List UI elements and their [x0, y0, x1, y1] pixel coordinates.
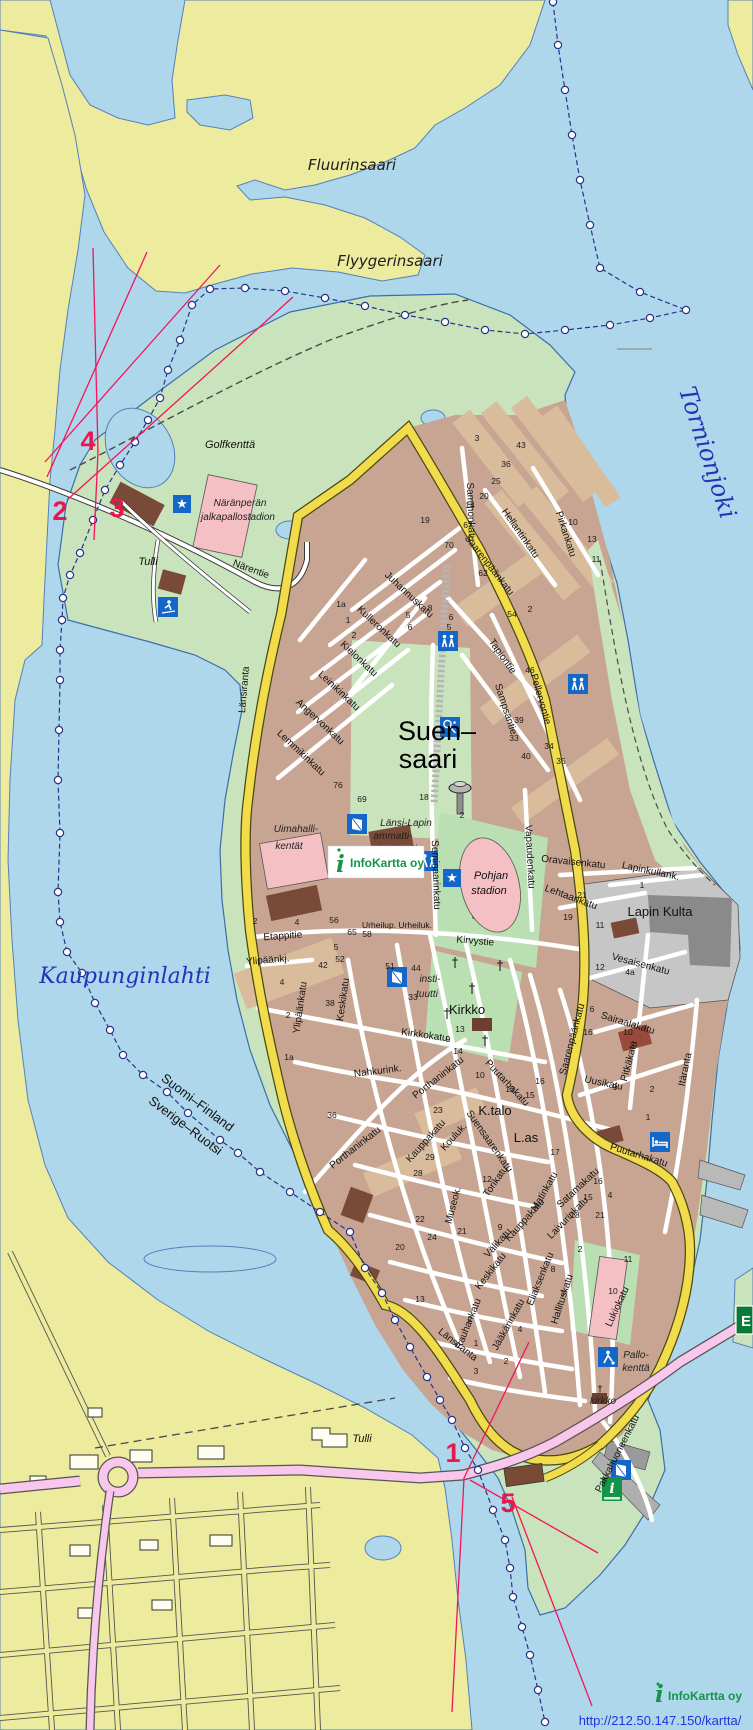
house-number: 11 — [624, 1254, 633, 1264]
skier-icon — [158, 597, 178, 617]
house-number: 10 — [623, 1027, 633, 1037]
star-icon: ★ — [443, 869, 461, 887]
house-number: 36 — [501, 459, 511, 469]
house-number: 4 — [608, 1190, 613, 1200]
house-number: 19 — [420, 515, 430, 525]
house-number: 2 — [253, 916, 258, 926]
map-marker-5[interactable]: 5 — [500, 1488, 515, 1518]
hotel-icon — [650, 1132, 670, 1152]
house-number: 58 — [362, 929, 372, 939]
map-marker-4[interactable]: 4 — [80, 426, 95, 456]
house-number: 1 — [640, 880, 645, 890]
house-number: 19 — [563, 912, 573, 922]
label-tulli-se: Tulli — [352, 1433, 372, 1445]
label-instituutti-1: Länsi-Lapin — [380, 818, 432, 829]
map-marker-2[interactable]: 2 — [52, 496, 67, 526]
house-number: 11 — [592, 554, 601, 564]
house-number: 35 — [556, 756, 566, 766]
house-number: 10 — [475, 1070, 485, 1080]
house-number: 69 — [357, 794, 367, 804]
house-number: 51 — [385, 961, 395, 971]
svg-text:†: † — [497, 959, 504, 974]
house-number: 18 — [419, 792, 429, 802]
label-pallokentta-1: Pallo- — [623, 1350, 649, 1361]
map-source-url[interactable]: http://212.50.147.150/kartta/ — [579, 1713, 742, 1728]
label-kirkko: Kirkko — [449, 1002, 485, 1017]
house-number: 12 — [595, 962, 605, 972]
svg-text:†: † — [598, 1384, 603, 1395]
label-naranperan-1: Näränperän — [214, 498, 267, 509]
house-number: 10 — [608, 1286, 618, 1296]
label-golfkentta: Golfkenttä — [205, 439, 255, 451]
house-number: 6 — [408, 622, 413, 632]
map-page: ★ ★ — [0, 0, 753, 1730]
house-number: 5 — [406, 610, 411, 620]
label-las: L.as — [514, 1130, 539, 1145]
tornio-city-map: ★ ★ — [0, 0, 753, 1730]
house-number: 20 — [479, 491, 489, 501]
house-number: 16 — [593, 1176, 603, 1186]
house-number: 2 — [578, 1244, 583, 1254]
label-lapinkulta: Lapin Kulta — [627, 904, 693, 919]
house-number: 36 — [327, 1110, 337, 1120]
logo-i-glyph: i — [336, 851, 345, 878]
star-icon: ★ — [173, 495, 191, 513]
svg-text:†: † — [452, 956, 459, 971]
label-kirkko-small: kirkko — [590, 1396, 617, 1407]
house-number: 4 — [280, 977, 285, 987]
e-road-sign: E — [736, 1306, 753, 1334]
house-number: 34 — [544, 741, 554, 751]
house-number: 3 — [475, 433, 480, 443]
house-number: 2 — [286, 1010, 291, 1020]
house-number: 9 — [446, 1034, 451, 1044]
house-number: 1a — [284, 1052, 294, 1062]
house-number: 1 — [474, 1338, 479, 1348]
house-number: 25 — [491, 476, 501, 486]
label-instituutti2-2: tuutti — [416, 989, 438, 1000]
island-label-fluurinsaari: Fluurinsaari — [308, 156, 397, 174]
house-number: 6 — [449, 612, 454, 622]
svg-text:†: † — [482, 1034, 489, 1049]
house-number: 1a — [336, 599, 346, 609]
map-marker-1[interactable]: 1 — [445, 1438, 460, 1468]
house-number: 13 — [415, 1294, 425, 1304]
house-number: 2 — [352, 630, 357, 640]
svg-text:★: ★ — [176, 496, 188, 511]
house-number: 5 — [334, 942, 339, 952]
house-number: 2 — [468, 1314, 473, 1324]
house-number: 2 — [504, 1356, 509, 1366]
house-number: 3 — [474, 1366, 479, 1376]
house-number: 44 — [411, 963, 421, 973]
museum-icon — [347, 814, 367, 834]
house-number: 18 — [570, 1210, 580, 1220]
house-number: 67 — [463, 520, 473, 530]
house-number: 12 — [505, 1084, 515, 1094]
house-number: 2 — [460, 810, 465, 820]
house-number: 11 — [596, 920, 605, 930]
house-number: 8 — [551, 1264, 556, 1274]
house-number: 12 — [482, 1174, 492, 1184]
house-number: 10 — [568, 517, 578, 527]
house-number: 28 — [413, 1168, 423, 1178]
house-number: 65 — [347, 927, 357, 937]
house-number: 4 — [518, 1324, 523, 1334]
house-number: 16 — [583, 1027, 593, 1037]
house-number: 40 — [521, 751, 531, 761]
island-label-flyygerinsaari: Flyygerinsaari — [337, 252, 444, 270]
house-number: 21 — [595, 1210, 605, 1220]
house-number: 2 — [528, 604, 533, 614]
infokartta-logo-center: i InfoKartta oy — [328, 846, 424, 878]
house-number: 20 — [395, 1242, 405, 1252]
house-number: 14 — [453, 1046, 463, 1056]
pond — [365, 1536, 401, 1560]
house-number: 33 — [509, 733, 519, 743]
house-number: 7 — [561, 1289, 566, 1299]
label-suensaari-2: saari — [399, 744, 458, 774]
football-icon — [598, 1347, 618, 1367]
label-suensaari-1: Suen– — [398, 716, 476, 746]
house-number: 54 — [507, 609, 517, 619]
house-number: 3 — [630, 1040, 635, 1050]
house-number: 4a — [625, 967, 635, 977]
house-number: 70 — [444, 540, 454, 550]
logo-text: InfoKartta oy — [668, 1689, 742, 1703]
e-road-sign-label: E — [741, 1313, 751, 1330]
house-number: 43 — [516, 440, 526, 450]
label-kentat-1: Uimahalli- — [274, 824, 319, 835]
house-number: 52 — [335, 954, 345, 964]
svg-text:i: i — [609, 1481, 614, 1497]
label-ktalo: K.talo — [478, 1103, 511, 1118]
house-number: 13 — [587, 534, 597, 544]
pedestrian-crossing-icon — [568, 674, 588, 694]
house-number: 5 — [447, 622, 452, 632]
house-number: 15 — [525, 1090, 535, 1100]
logo-text: InfoKartta oy — [350, 856, 424, 870]
house-number: 8 — [428, 603, 433, 613]
house-number: 23 — [433, 1105, 443, 1115]
house-number: 22 — [415, 1214, 425, 1224]
svg-text:†: † — [469, 982, 476, 997]
house-number: 38 — [325, 998, 335, 1008]
house-number: 29 — [425, 1152, 435, 1162]
house-number: 21 — [577, 890, 587, 900]
house-number: 17 — [550, 1147, 560, 1157]
house-number: 9 — [613, 1082, 618, 1092]
label-pohjan-1: Pohjan — [474, 870, 508, 882]
house-number: 9 — [498, 1222, 503, 1232]
house-number: 6 — [590, 1004, 595, 1014]
label-naranperan-2: jalkapallostadion — [199, 512, 275, 523]
house-number: 2 — [650, 1084, 655, 1094]
house-number: 76 — [333, 780, 343, 790]
house-number: 62 — [478, 568, 488, 578]
pedestrian-crossing-icon — [438, 631, 458, 651]
label-urheilukatu: Urheilup. Urheiluk. — [362, 920, 432, 930]
label-pohjan-2: stadion — [471, 885, 506, 897]
house-number: 39 — [514, 715, 524, 725]
label-tulli-fi: Tulli — [138, 556, 158, 568]
label-kentat-2: kentät — [275, 841, 303, 852]
house-number: 46 — [525, 665, 535, 675]
house-number: 24 — [427, 1232, 437, 1242]
house-number: 15 — [583, 1192, 593, 1202]
house-number: 1 — [646, 1112, 651, 1122]
house-number: 56 — [329, 915, 339, 925]
house-number: 16 — [535, 1076, 545, 1086]
house-number: 21 — [457, 1226, 467, 1236]
house-number: 4 — [295, 917, 300, 927]
map-marker-3[interactable]: 3 — [109, 493, 124, 523]
house-number: 14 — [465, 500, 475, 510]
house-number: 13 — [455, 1024, 465, 1034]
house-number: 33 — [408, 992, 418, 1002]
house-number: 1 — [346, 615, 351, 625]
water-label-kaupunginlahti: Kaupunginlahti — [38, 964, 211, 989]
label-instituutti-2: ammatti- — [374, 831, 414, 842]
svg-text:★: ★ — [446, 870, 458, 885]
logo-i-glyph: i — [655, 1681, 664, 1708]
house-number: 42 — [318, 960, 328, 970]
label-instituutti2-1: insti- — [419, 974, 441, 985]
pond — [144, 1246, 276, 1272]
label-pallokentta-2: kenttä — [622, 1363, 650, 1374]
